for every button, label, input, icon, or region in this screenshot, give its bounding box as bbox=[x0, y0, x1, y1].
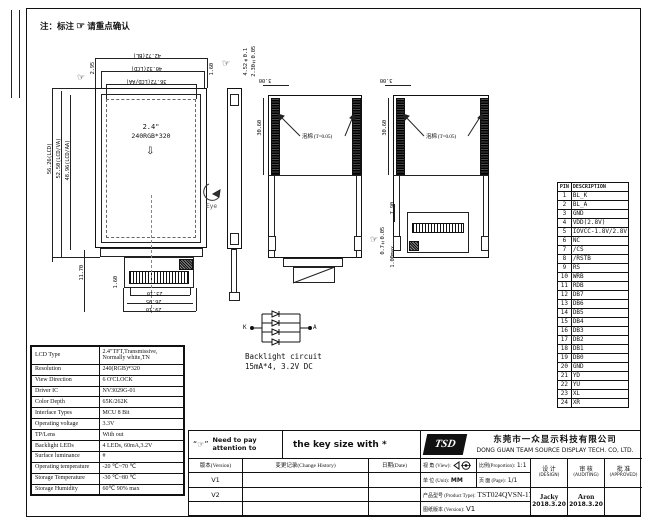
ext-line bbox=[207, 58, 208, 88]
pin-table-header: PIN DESCRIPTION bbox=[558, 183, 629, 192]
spec-label: TP/Lens bbox=[31, 430, 99, 441]
pin-description: IOVCC-1.8V/2.8V bbox=[571, 228, 628, 237]
dim-panel-thickness: 2.30±0.05 bbox=[251, 46, 257, 77]
pin-number: 16 bbox=[558, 327, 572, 336]
pin-number: 12 bbox=[558, 291, 572, 300]
dim-line bbox=[263, 98, 264, 175]
spec-row: TP/Lens With out bbox=[31, 430, 184, 441]
pin-number: 2 bbox=[558, 201, 572, 210]
dim-lcd-width: 40.32(LCD) bbox=[131, 65, 162, 71]
audit-name: Aron bbox=[568, 492, 604, 501]
pin-description: YD bbox=[571, 372, 628, 381]
mount-tab bbox=[268, 236, 276, 251]
pin-number: 6 bbox=[558, 237, 572, 246]
pin-description: GND bbox=[571, 363, 628, 372]
fpc-fold-section bbox=[293, 267, 335, 283]
spec-value: 3.3V bbox=[99, 419, 184, 430]
spec-row: View Direction 6 O'CLOCK bbox=[31, 375, 184, 386]
company-cell: TSD 东莞市一众显示科技有限公司 DONG GUAN TEAM SOURCE … bbox=[421, 431, 642, 459]
dim-line bbox=[263, 85, 289, 86]
side-view-fpc-tail bbox=[231, 249, 237, 293]
spec-value: 240(RGB)*320 bbox=[99, 364, 184, 375]
pin-description: DB3 bbox=[571, 327, 628, 336]
pin-description: DB4 bbox=[571, 318, 628, 327]
drawing-sheet: 注：标注 ☞ 请重点确认 2.4" 240RGB*320 ⇩ 42.72(BL)… bbox=[0, 0, 650, 524]
side-view-outline bbox=[227, 88, 242, 249]
foam-label: 泡棉 (T=0.05) bbox=[284, 134, 350, 140]
spec-label: Surface luminance bbox=[31, 451, 99, 462]
spec-value: 4 LEDs, 60mA,3.2V bbox=[99, 441, 184, 452]
spec-value: -30 ℃~80 ℃ bbox=[99, 473, 184, 484]
spec-value: 2.4"TFT,Transmissive, Normally white,TN bbox=[99, 346, 184, 364]
history-header-change: 变更记录(Change History) bbox=[243, 459, 369, 473]
ext-line bbox=[52, 257, 100, 258]
pin-number: 4 bbox=[558, 219, 572, 228]
backlight-a-label: A bbox=[313, 325, 316, 332]
approve-sign-cell bbox=[605, 488, 642, 517]
drawing-version-cell: 图纸版本 (Version): V1 bbox=[421, 502, 531, 517]
design-header-cell: 设 计 (DESIGN) bbox=[531, 459, 568, 488]
pin-number: 24 bbox=[558, 399, 572, 408]
pin-row: 9 RS bbox=[558, 264, 629, 273]
pin-row: 5 IOVCC-1.8V/2.8V bbox=[558, 228, 629, 237]
history-change-3 bbox=[243, 502, 369, 517]
approve-subtitle: (APPROVED) bbox=[605, 473, 642, 478]
pin-row: 12 DB7 bbox=[558, 291, 629, 300]
pin-number: 21 bbox=[558, 372, 572, 381]
pin-description: DB2 bbox=[571, 336, 628, 345]
spec-value: MCU 8 Bit bbox=[99, 408, 184, 419]
company-logo: TSD bbox=[423, 434, 467, 455]
pin-col-header: PIN bbox=[558, 183, 572, 192]
pointing-hand-icon: ☞ bbox=[77, 74, 85, 83]
ext-line bbox=[196, 84, 197, 99]
pin-description: BL_K bbox=[571, 192, 628, 201]
pointing-hand-icon: ☞ bbox=[222, 60, 230, 69]
dim-lcd-height: 56.26(LCD) bbox=[47, 143, 53, 174]
pin-number: 14 bbox=[558, 309, 572, 318]
ext-line bbox=[130, 288, 131, 295]
edge-line bbox=[393, 175, 489, 176]
spec-row: Driver IC NV3029G-01 bbox=[31, 386, 184, 397]
note-label: 注：标注 bbox=[40, 21, 74, 31]
audit-title: 审 核 bbox=[568, 464, 604, 473]
lcd-spec-table: LCD Type 2.4"TFT,Transmissive, Normally … bbox=[30, 345, 185, 496]
ext-line bbox=[123, 288, 124, 311]
audit-subtitle: (AUDITING) bbox=[568, 473, 604, 478]
history-date-2 bbox=[369, 488, 421, 502]
key-size-note: the key size with * bbox=[283, 431, 421, 459]
spec-value: # bbox=[99, 451, 184, 462]
screen-size-label: 2.4" bbox=[121, 123, 181, 131]
spec-label: Storage Humidity bbox=[31, 484, 99, 495]
dim-0-7: 0.7±0.05 bbox=[380, 227, 386, 255]
pointing-hand-icon: ☞ bbox=[370, 236, 378, 245]
pin-row: 22 YU bbox=[558, 381, 629, 390]
unit-value: MM bbox=[451, 477, 463, 484]
pin-row: 21 YD bbox=[558, 372, 629, 381]
drawing-version-label: 图纸版本 (Version): bbox=[423, 508, 464, 513]
pin-description: YU bbox=[571, 381, 628, 390]
product-type-value: TST024QVSN-17 bbox=[477, 490, 531, 499]
edge-line bbox=[268, 175, 362, 176]
spec-row: Storage Humidity 60℃ 90% max bbox=[31, 484, 184, 495]
pin-row: 16 DB3 bbox=[558, 327, 629, 336]
dim-29-10: 29.10 bbox=[146, 306, 162, 312]
pin-description: RDB bbox=[571, 282, 628, 291]
approve-title: 批 准 bbox=[605, 464, 642, 473]
pin-row: 24 XR bbox=[558, 399, 629, 408]
note-confirm: 请重点确认 bbox=[87, 21, 130, 31]
spec-label: Interface Types bbox=[31, 408, 99, 419]
pin-number: 23 bbox=[558, 390, 572, 399]
side-view-segment bbox=[230, 233, 239, 245]
spec-value: -20 ℃~70 ℃ bbox=[99, 462, 184, 473]
design-title: 设 计 bbox=[531, 464, 567, 473]
dim-aa-height: 48.96(LCD/AA) bbox=[65, 140, 71, 180]
pin-table: PIN DESCRIPTION 1 BL_K 2 BL_A 3 GND bbox=[557, 182, 629, 408]
drawing-version-value: V1 bbox=[466, 505, 475, 513]
spec-value: 60℃ 90% max bbox=[99, 484, 184, 495]
edge-line bbox=[399, 175, 400, 238]
spec-value: NV3029G-01 bbox=[99, 386, 184, 397]
spec-row: LCD Type 2.4"TFT,Transmissive, Normally … bbox=[31, 346, 184, 364]
pointing-hand-icon: “☞” bbox=[193, 440, 208, 449]
title-block: “☞” Need to pay attention to the key siz… bbox=[188, 430, 641, 516]
approve-header-cell: 批 准 (APPROVED) bbox=[605, 459, 642, 488]
fpc-component bbox=[409, 241, 419, 251]
spec-row: Operating voltage 3.3V bbox=[31, 419, 184, 430]
foam-tape-strip bbox=[352, 98, 361, 175]
pin-row: 7 /CS bbox=[558, 246, 629, 255]
pin-row: 15 DB4 bbox=[558, 318, 629, 327]
pin-number: 18 bbox=[558, 345, 572, 354]
pin-row: 2 BL_A bbox=[558, 201, 629, 210]
pin-description: DB1 bbox=[571, 345, 628, 354]
dim-line bbox=[388, 98, 389, 175]
spec-label: View Direction bbox=[31, 375, 99, 386]
spec-row: Surface luminance # bbox=[31, 451, 184, 462]
fpc-connector-fingers bbox=[129, 271, 189, 284]
audit-date: 2018.3.20 bbox=[568, 501, 604, 508]
dim-1-60-bottom: 1.60 bbox=[113, 276, 119, 288]
design-subtitle: (DESIGN) bbox=[531, 473, 567, 478]
pin-description: GND bbox=[571, 210, 628, 219]
unit-label: 单 位 (Unit): bbox=[423, 479, 449, 484]
pin-description: WRB bbox=[571, 273, 628, 282]
page-label: 页 面 (Page): bbox=[479, 479, 506, 484]
ext-line bbox=[204, 71, 205, 88]
dim-1-00max: 1.00max bbox=[390, 246, 396, 268]
spec-label: Storage Temperature bbox=[31, 473, 99, 484]
dim-26-95: 26.95 bbox=[146, 298, 162, 304]
pin-row: 8 /RSTB bbox=[558, 255, 629, 264]
pin-number: 17 bbox=[558, 336, 572, 345]
pin-number: 7 bbox=[558, 246, 572, 255]
pointing-hand-icon: ☞ bbox=[76, 21, 85, 32]
design-date: 2018.3.20 bbox=[531, 501, 567, 508]
dim-3-00: 3.00 bbox=[380, 77, 392, 83]
dim-30-60: 30.60 bbox=[382, 120, 388, 136]
pin-row: 1 BL_K bbox=[558, 192, 629, 201]
design-name: Jacky bbox=[531, 492, 567, 501]
dim-3-00: 3.00 bbox=[259, 77, 271, 83]
pin-description: DB5 bbox=[571, 309, 628, 318]
spec-row: Backlight LEDs 4 LEDs, 60mA,3.2V bbox=[31, 441, 184, 452]
spec-row: Resolution 240(RGB)*320 bbox=[31, 364, 184, 375]
projection-symbol-icon bbox=[453, 461, 473, 470]
pin-number: 15 bbox=[558, 318, 572, 327]
history-date-1 bbox=[369, 473, 421, 488]
dim-2-95: 2.95 bbox=[90, 62, 96, 74]
pin-number: 3 bbox=[558, 210, 572, 219]
spec-label: Color Depth bbox=[31, 397, 99, 408]
spec-value: 65K/262K bbox=[99, 397, 184, 408]
dim-11-70: 11.70 bbox=[79, 265, 85, 281]
dim-line bbox=[385, 85, 411, 86]
pin-row: 14 DB5 bbox=[558, 309, 629, 318]
design-sign-cell: Jacky 2018.3.20 bbox=[531, 488, 568, 517]
pin-number: 20 bbox=[558, 363, 572, 372]
backlight-spec: 15mA*4, 3.2V DC bbox=[245, 362, 313, 371]
fpc-component bbox=[179, 259, 193, 270]
pin-description: NC bbox=[571, 237, 628, 246]
foam-label: 泡棉 (T=0.05) bbox=[408, 134, 474, 140]
company-name-en: DONG GUAN TEAM SOURCE DISPLAY TECH. CO, … bbox=[471, 447, 639, 454]
history-date-3 bbox=[369, 502, 421, 517]
ext-line bbox=[190, 288, 191, 295]
dim-line bbox=[101, 71, 204, 72]
foam-tape-strip bbox=[480, 98, 489, 175]
back-view-taped-outline bbox=[268, 95, 362, 258]
audit-sign-cell: Aron 2018.3.20 bbox=[568, 488, 605, 517]
pin-row: 18 DB1 bbox=[558, 345, 629, 354]
pin-row: 19 DB0 bbox=[558, 354, 629, 363]
dim-30-60: 30.60 bbox=[257, 120, 263, 136]
spec-label: Operating voltage bbox=[31, 419, 99, 430]
confirm-note: 注：标注 ☞ 请重点确认 bbox=[40, 20, 130, 32]
dim-line bbox=[106, 84, 196, 85]
history-version-2: V2 bbox=[189, 488, 243, 502]
foam-tape-strip bbox=[271, 98, 280, 175]
dim-bl-width: 42.72(BL) bbox=[133, 52, 161, 58]
spec-label: Backlight LEDs bbox=[31, 441, 99, 452]
dim-1-60-top: 1.60 bbox=[209, 63, 215, 75]
frame-fold-mark bbox=[19, 10, 20, 98]
spec-label: Driver IC bbox=[31, 386, 99, 397]
pin-number: 22 bbox=[558, 381, 572, 390]
pin-description: DB7 bbox=[571, 291, 628, 300]
pin-row: 4 VDD(2.8V) bbox=[558, 219, 629, 228]
view-angle-cell: 视 角 (View): bbox=[421, 459, 477, 473]
dim-va-height: 52.50(LCD/VA) bbox=[56, 138, 62, 178]
pin-row: 6 NC bbox=[558, 237, 629, 246]
mount-tab bbox=[481, 236, 489, 251]
foam-tape-strip bbox=[396, 98, 405, 175]
pin-description: XL bbox=[571, 390, 628, 399]
description-col-header: DESCRIPTION bbox=[571, 183, 628, 192]
proportion-value: 1:1 bbox=[517, 462, 527, 469]
view-angle-label: 视 角 (View): bbox=[423, 462, 451, 469]
history-change-1 bbox=[243, 473, 369, 488]
company-name-cn: 东莞市一众显示科技有限公司 bbox=[471, 433, 639, 445]
pin-description: DB0 bbox=[571, 354, 628, 363]
spec-label: LCD Type bbox=[31, 346, 99, 364]
spec-row: Interface Types MCU 8 Bit bbox=[31, 408, 184, 419]
proportion-cell: 比例(Proportion): 1:1 bbox=[477, 459, 531, 473]
spec-label: Resolution bbox=[31, 364, 99, 375]
eye-direction-label: Eye bbox=[206, 203, 217, 210]
attention-text: Need to pay attention to bbox=[212, 437, 266, 453]
pin-description: DB6 bbox=[571, 300, 628, 309]
pin-number: 8 bbox=[558, 255, 572, 264]
pin-row: 20 GND bbox=[558, 363, 629, 372]
pin-description: /RSTB bbox=[571, 255, 628, 264]
spec-value: 6 O'CLOCK bbox=[99, 375, 184, 386]
edge-line bbox=[483, 175, 484, 238]
audit-header-cell: 审 核 (AUDITING) bbox=[568, 459, 605, 488]
history-version-1: V1 bbox=[189, 473, 243, 488]
pin-description: /CS bbox=[571, 246, 628, 255]
screen-resolution-label: 240RGB*320 bbox=[116, 133, 186, 141]
pin-description: XR bbox=[571, 399, 628, 408]
history-header-version: 版本(Version) bbox=[189, 459, 243, 473]
product-type-cell: 产品型号 (Product Type): TST024QVSN-17 bbox=[421, 488, 531, 502]
ext-line bbox=[106, 84, 107, 99]
dim-line bbox=[52, 88, 53, 262]
pin-number: 11 bbox=[558, 282, 572, 291]
dim-23-10: 23.10 bbox=[147, 290, 163, 296]
dim-line bbox=[84, 250, 85, 312]
backlight-k-label: K bbox=[243, 325, 246, 332]
spec-value: With out bbox=[99, 430, 184, 441]
pin-number: 13 bbox=[558, 300, 572, 309]
page-value: 1/1 bbox=[508, 477, 518, 484]
side-view-segment bbox=[230, 94, 239, 106]
spec-label: Operating temperature bbox=[31, 462, 99, 473]
pin-row: 17 DB2 bbox=[558, 336, 629, 345]
pin-row: 3 GND bbox=[558, 210, 629, 219]
pin-row: 10 WRB bbox=[558, 273, 629, 282]
pixel-direction-arrow-icon: ⇩ bbox=[146, 146, 154, 157]
pin-number: 5 bbox=[558, 228, 572, 237]
pin-number: 10 bbox=[558, 273, 572, 282]
pin-row: 23 XL bbox=[558, 390, 629, 399]
pin-number: 9 bbox=[558, 264, 572, 273]
backlight-title: Backlight circuit bbox=[245, 352, 322, 361]
pin-number: 1 bbox=[558, 192, 572, 201]
history-header-date: 日期(Date) bbox=[369, 459, 421, 473]
side-view-fpc-foot bbox=[229, 292, 240, 301]
ext-line bbox=[52, 88, 95, 89]
product-type-label: 产品型号 (Product Type): bbox=[423, 494, 476, 499]
dim-aa-width: 36.72(LCD/AA) bbox=[126, 78, 166, 84]
pin-description: VDD(2.8V) bbox=[571, 219, 628, 228]
dim-total-thickness: 4.52±0.1 bbox=[243, 48, 249, 76]
proportion-label: 比例(Proportion): bbox=[479, 464, 515, 469]
dim-7-90: 7.90 bbox=[390, 202, 396, 214]
spec-row: Storage Temperature -30 ℃~80 ℃ bbox=[31, 473, 184, 484]
spec-row: Color Depth 65K/262K bbox=[31, 397, 184, 408]
frame-fold-mark bbox=[11, 10, 12, 98]
dim-line bbox=[95, 58, 207, 59]
history-version-3 bbox=[189, 502, 243, 517]
pin-description: BL_A bbox=[571, 201, 628, 210]
fpc-connector-fingers bbox=[412, 223, 464, 233]
fpc-fold-section bbox=[283, 258, 343, 267]
spec-row: Operating temperature -20 ℃~70 ℃ bbox=[31, 462, 184, 473]
page-cell: 页 面 (Page): 1/1 bbox=[477, 473, 531, 488]
pin-number: 19 bbox=[558, 354, 572, 363]
unit-cell: 单 位 (Unit): MM bbox=[421, 473, 477, 488]
pin-row: 13 DB6 bbox=[558, 300, 629, 309]
attention-cell: “☞” Need to pay attention to bbox=[189, 431, 283, 459]
ext-line bbox=[101, 71, 102, 88]
mount-tab bbox=[354, 236, 362, 251]
pin-description: RS bbox=[571, 264, 628, 273]
ext-line bbox=[196, 288, 197, 311]
pin-row: 11 RDB bbox=[558, 282, 629, 291]
history-change-2 bbox=[243, 488, 369, 502]
